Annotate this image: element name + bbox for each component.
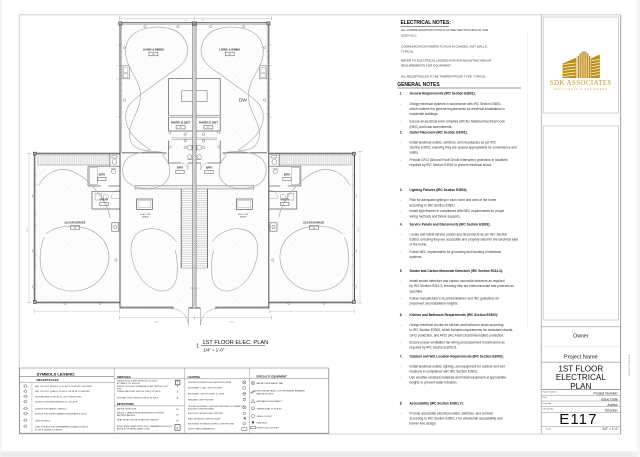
svg-text:JUNCTION BOX: JUNCTION BOX	[35, 420, 51, 422]
svg-text:DUPLEX FOR RANGE CONTROL: DUPLEX FOR RANGE CONTROL	[35, 407, 67, 410]
svg-text:SWITCHES: SWITCHES	[117, 375, 131, 379]
svg-text:THREE WAY LIGHT SWITCH, DIM @: THREE WAY LIGHT SWITCH, DIM @ 42" A.F.F.	[117, 390, 161, 393]
svg-text:SMOKE DETECTOR: SMOKE DETECTOR	[117, 408, 137, 410]
svg-text:ALL COMMUNICATION POINTS AS PE: ALL COMMUNICATION POINTS AS PER SECTION …	[401, 28, 488, 32]
svg-text:ELECTRIC CEILING LIGHT FIXTURE: ELECTRIC CEILING LIGHT FIXTURE	[188, 413, 223, 415]
svg-text:by IRC Section R314.3, ensurin: by IRC Section R314.3, ensuring they are…	[410, 284, 515, 288]
svg-text:Drawn By: Drawn By	[543, 403, 552, 405]
svg-text:Install electrical outlets, li: Install electrical outlets, lighting, an…	[410, 364, 505, 368]
svg-text:BATHROOM EXHAUST FAN: BATHROOM EXHAUST FAN	[257, 382, 284, 385]
svg-text:RECESSED EXTERIOR SOFFIT LIGHT: RECESSED EXTERIOR SOFFIT LIGHT FIXTURE	[188, 423, 235, 425]
svg-text:safety.: safety.	[410, 151, 419, 155]
svg-text:to IRC Section E3902, which in: to IRC Section E3902, which includes req…	[410, 328, 514, 332]
svg-text:BATTERY BACKUP: BATTERY BACKUP	[117, 414, 136, 417]
svg-text:42" A.F.F. UNDER COUNTER: 42" A.F.F. UNDER COUNTER	[35, 428, 63, 431]
svg-text:-: -	[400, 323, 401, 327]
svg-text:WALL MOUNTED LIGHT FIXTURE: WALL MOUNTED LIGHT FIXTURE	[188, 417, 221, 420]
svg-text:R: R	[177, 427, 179, 430]
svg-text:Follow NEC requirements for gr: Follow NEC requirements for grounding an…	[410, 250, 502, 254]
svg-text:Ensure proper ventilation fan: Ensure proper ventilation fan wiring and…	[410, 340, 506, 344]
svg-text:DUPLEX FOR UPPER CABINET MICRO: DUPLEX FOR UPPER CABINET MICROWAVE (U-BO…	[35, 413, 87, 416]
svg-text:Use weather-resistant material: Use weather-resistant materials and inst…	[410, 375, 507, 379]
svg-text:ELECTRICAL NOTES:: ELECTRICAL NOTES:	[401, 20, 452, 26]
svg-text:SINGLE POLE KEY OPERATED LIGHT: SINGLE POLE KEY OPERATED LIGHT SWITCH @ …	[117, 385, 169, 388]
svg-text:8/29/2023 4:46:08 PM: 8/29/2023 4:46:08 PM	[627, 355, 629, 376]
svg-text:ELECTRICAL PANEL, TOP OF HIGHE: ELECTRICAL PANEL, TOP OF HIGHEST BREAKER	[257, 389, 306, 392]
svg-text:(2) CAR GARAGE: (2) CAR GARAGE	[65, 222, 86, 225]
svg-text:Provide GFCI (Ground Fault Cir: Provide GFCI (Ground Fault Circuit Inter…	[410, 158, 509, 162]
svg-text:Design electrical systems in a: Design electrical systems in accordance …	[410, 102, 502, 106]
svg-text:Project Number: Project Number	[543, 390, 557, 393]
svg-text:Project Name: Project Name	[564, 355, 598, 361]
svg-text:DATA JACK: DATA JACK	[257, 421, 268, 424]
svg-text:-: -	[400, 158, 401, 162]
svg-text:ELEC. PNL: ELEC. PNL	[140, 214, 151, 216]
svg-text:LIGHTING: LIGHTING	[188, 375, 200, 379]
svg-text:Ensure all electrical work com: Ensure all electrical work complies with…	[410, 120, 506, 124]
svg-text:RECESSED LIGHT FIXTURE, IC TYP: RECESSED LIGHT FIXTURE, IC TYPE	[188, 394, 225, 396]
svg-text:locations in compliance with I: locations in compliance with IRC Section…	[410, 370, 479, 374]
svg-text:PANTRY CLOSET: PANTRY CLOSET	[199, 122, 219, 125]
svg-text:E3603, ensuring they are acces: E3603, ensuring they are accessible and …	[410, 238, 519, 242]
svg-text:2020 N.E.C.: 2020 N.E.C.	[401, 33, 418, 37]
svg-text:Outdoor and Wet Location Requi: Outdoor and Wet Location Requirements (I…	[410, 354, 504, 358]
svg-text:LIVING & DINING: LIVING & DINING	[219, 47, 240, 51]
svg-text:Section E3901, ensuring they a: Section E3901, ensuring they are spaced …	[410, 146, 517, 150]
svg-text:24'-0": 24'-0"	[155, 321, 160, 323]
svg-text:UTILITY: UTILITY	[280, 200, 289, 202]
svg-text:-: -	[400, 102, 401, 106]
svg-text:REFER TO ELECTRICAL LEGEND FOR: REFER TO ELECTRICAL LEGEND FOR ADA MOUNT…	[401, 58, 492, 62]
svg-text:1: 1	[196, 343, 199, 349]
svg-text:Checked By: Checked By	[543, 409, 554, 411]
svg-text:1/4" = 1'-0": 1/4" = 1'-0"	[203, 348, 224, 353]
svg-text:2.: 2.	[400, 130, 403, 134]
svg-text:which outlines the general req: which outlines the general requirements …	[410, 107, 506, 111]
svg-text:Install electrical outlets, sw: Install electrical outlets, switches, an…	[410, 140, 497, 144]
svg-text:1ST FLOOR ELEC. PLAN: 1ST FLOOR ELEC. PLAN	[202, 340, 268, 346]
svg-text:1.: 1.	[400, 92, 403, 96]
svg-text:systems.: systems.	[410, 255, 423, 259]
svg-text:THERMOSTAT @ 48" A.F.F.: THERMOSTAT @ 48" A.F.F.	[257, 407, 283, 410]
svg-text:DW: DW	[239, 98, 247, 104]
svg-text:-: -	[400, 250, 401, 254]
svg-text:Design electrical circuits for: Design electrical circuits for kitchen a…	[410, 323, 504, 327]
svg-text:-: -	[400, 340, 401, 344]
svg-text:ARCHITECTS & ENGINEERS: ARCHITECTS & ENGINEERS	[554, 88, 608, 91]
svg-text:COMMUNICATION RISERS TO RUN IN: COMMUNICATION RISERS TO RUN IN CHASES, N…	[401, 44, 488, 48]
svg-text:SYMBOLS LEGEND:: SYMBOLS LEGEND:	[37, 371, 76, 376]
svg-text:22'-0": 22'-0"	[358, 227, 360, 232]
svg-text:CEILING MOUNTED LED LIGHTING F: CEILING MOUNTED LED LIGHTING FIXTURE	[188, 382, 232, 384]
svg-text:BATH: BATH	[99, 174, 106, 177]
svg-text:PENDANT LIGHT FIXTURE: PENDANT LIGHT FIXTURE	[188, 398, 214, 401]
svg-text:(NEC) and local amendments.: (NEC) and local amendments.	[410, 125, 453, 129]
svg-text:Owner: Owner	[573, 333, 589, 339]
svg-text:Service Panels and Disconnects: Service Panels and Disconnects (IRC Sect…	[410, 222, 491, 226]
svg-text:BUILDING LIGHTING WIRE: BUILDING LIGHTING WIRE	[188, 409, 214, 411]
svg-text:SPECIALTY EQUIPMENT: SPECIALTY EQUIPMENT	[256, 375, 287, 379]
svg-text:GENERAL NOTES: GENERAL NOTES	[397, 82, 440, 88]
svg-text:ALL RECEPTACLES TO BE TAMPER P: ALL RECEPTACLES TO BE TAMPER PROOF TYPE,…	[401, 74, 486, 78]
svg-text:Provide accessible electrical: Provide accessible electrical outlets, s…	[410, 411, 494, 415]
svg-text:-: -	[400, 364, 401, 368]
svg-text:required by IRC Section E3902: required by IRC Section E3902 to prevent…	[410, 163, 493, 167]
svg-text:-: -	[400, 375, 401, 379]
svg-text:Author: Author	[607, 403, 618, 407]
svg-text:according to IRC Section E3901: according to IRC Section E3901.7 for whe…	[410, 417, 503, 421]
svg-text:-: -	[400, 209, 401, 213]
svg-text:Checker: Checker	[605, 409, 619, 413]
svg-text:1/4" = 1'-0": 1/4" = 1'-0"	[602, 427, 619, 431]
svg-text:General Requirements (IRC Sect: General Requirements (IRC Section E3601)…	[410, 92, 476, 96]
svg-text:placement and installation hei: placement and installation heights.	[410, 302, 459, 306]
svg-text:4.: 4.	[400, 222, 403, 226]
svg-text:Accessibility (IRC Section E39: Accessibility (IRC Section E3901.7):	[410, 401, 464, 405]
svg-text:BATH: BATH	[177, 167, 184, 170]
svg-text:of the home.: of the home.	[410, 243, 428, 247]
svg-text:according to IRC Section E3801: according to IRC Section E3801.	[410, 203, 456, 207]
svg-text:UTILITY: UTILITY	[100, 200, 109, 202]
svg-text:Locate and install service pan: Locate and install service panels and di…	[410, 232, 508, 236]
svg-text:required by IRC Section E3902.: required by IRC Section E3902.8.	[410, 346, 458, 350]
svg-text:APPLIANCE DISCONNECT: APPLIANCE DISCONNECT	[257, 400, 283, 403]
svg-text:RECEPTACLES: RECEPTACLES	[37, 378, 59, 382]
svg-text:LIGHT / FAN COMBINATION: LIGHT / FAN COMBINATION	[188, 428, 215, 431]
svg-text:SMOKE / CARBON MONOXIDE DETECT: SMOKE / CARBON MONOXIDE DETECTOR WITH	[117, 412, 165, 415]
svg-text:5.: 5.	[400, 269, 403, 273]
svg-text:48" MAX R.T.S. SWITCH: 48" MAX R.T.S. SWITCH	[117, 382, 140, 385]
svg-text:PANTRY CLOSET: PANTRY CLOSET	[171, 122, 191, 125]
svg-text:RECESSED 6" LED LIGHT FIXTURE: RECESSED 6" LED LIGHT FIXTURE	[188, 388, 223, 390]
svg-text:INTELLIGENT HEAT DETECTOR COMB: INTELLIGENT HEAT DETECTOR COMBINATION WI…	[117, 425, 172, 428]
svg-text:ELEC. PNL: ELEC. PNL	[238, 214, 249, 216]
svg-text:GFCI protection, and AFCI (Arc: GFCI protection, and AFCI (Arc Fault Cir…	[410, 333, 505, 337]
svg-text:SDK ASSOCIATES: SDK ASSOCIATES	[550, 79, 612, 87]
svg-text:-: -	[400, 232, 401, 236]
svg-text:22'-0": 22'-0"	[27, 227, 29, 232]
svg-text:4'-0": 4'-0"	[184, 20, 188, 22]
svg-text:7.: 7.	[400, 354, 403, 358]
svg-text:Kitchen and Bathroom Requireme: Kitchen and Bathroom Requirements (IRC S…	[410, 313, 498, 317]
svg-text:24'-0": 24'-0"	[230, 321, 235, 323]
svg-text:residential buildings.: residential buildings.	[410, 112, 439, 116]
svg-text:Follow manufacturer's recommen: Follow manufacturer's recommendations an…	[410, 296, 501, 300]
svg-text:HEAT DETECTOR WITH BATTERY BAC: HEAT DETECTOR WITH BATTERY BACKUP	[117, 419, 159, 422]
svg-text:DBL. 120 VOLT QUAD @ 18" A.F.F: DBL. 120 VOLT QUAD @ 18" A.F.F. OR 48" A…	[35, 390, 90, 393]
svg-text:8.: 8.	[400, 401, 403, 405]
svg-text:RUN WAY LIGHT SWITCH, DIM @ 42: RUN WAY LIGHT SWITCH, DIM @ 42" A.F.F.	[117, 397, 159, 400]
svg-text:specified.: specified.	[410, 289, 424, 293]
svg-text:Outlet Placement (IRC Section: Outlet Placement (IRC Section E3901):	[410, 130, 468, 134]
svg-text:BATH: BATH	[284, 174, 291, 177]
svg-text:INTERCOM @ 48" A.F.F.: INTERCOM @ 48" A.F.F.	[257, 426, 280, 429]
svg-text:PART AT 48" A.F.F.: PART AT 48" A.F.F.	[257, 392, 275, 395]
svg-text:4'-0": 4'-0"	[201, 20, 205, 22]
svg-text:TYPICAL: TYPICAL	[401, 50, 414, 54]
svg-text:Scale: Scale	[546, 428, 552, 430]
svg-text:-: -	[400, 198, 401, 202]
svg-text:6.: 6.	[400, 313, 403, 317]
svg-text:BATH: BATH	[206, 167, 213, 170]
svg-text:barrier-free design.: barrier-free design.	[410, 422, 437, 426]
svg-text:DETECTIONS: DETECTIONS	[117, 402, 134, 406]
svg-text:-: -	[400, 140, 401, 144]
svg-text:wiring methods and fixture sup: wiring methods and fixture supports.	[410, 214, 461, 218]
svg-text:GROUND FAULT DUPLEX @ +18" OR: GROUND FAULT DUPLEX @ +18" OR AS NOTED	[35, 395, 82, 398]
svg-text:heights to prevent water intru: heights to prevent water intrusion.	[410, 381, 458, 385]
svg-text:SPACE: SPACE	[142, 216, 149, 219]
svg-text:E117: E117	[559, 411, 597, 428]
svg-text:-: -	[400, 411, 401, 415]
svg-text:SINGLE POLE LIGHT SWITCH @ 42": SINGLE POLE LIGHT SWITCH @ 42" A.F.F.	[117, 380, 158, 383]
svg-text:DUPLEX FOR REFRIGERATOR @ +48": DUPLEX FOR REFRIGERATOR @ +48" A.F.F.	[35, 401, 78, 404]
svg-text:-: -	[400, 120, 401, 124]
svg-text:3.: 3.	[400, 188, 403, 192]
svg-text:Project Number: Project Number	[593, 392, 618, 396]
svg-text:JUNCTION BOX FOR DISHWASHER CO: JUNCTION BOX FOR DISHWASHER CONNECTIONS …	[35, 425, 88, 428]
svg-text:LIVING & DINING: LIVING & DINING	[143, 47, 164, 51]
svg-text:AND A 10 YR RATED TAMP LOCAL: AND A 10 YR RATED TAMP LOCAL	[117, 428, 151, 431]
svg-text:-: -	[400, 296, 401, 300]
svg-text:DBL. 120 VOLT DUPLEX @ 18" A.F: DBL. 120 VOLT DUPLEX @ 18" A.F.F. OR 48"…	[35, 385, 93, 388]
svg-text:REQUIREMENTS FOR EQUIPMENT: REQUIREMENTS FOR EQUIPMENT	[401, 64, 451, 68]
svg-text:(2) CAR GARAGE: (2) CAR GARAGE	[303, 222, 324, 225]
svg-text:A.F.F.: A.F.F.	[117, 387, 123, 390]
svg-text:CABLE OUTLET: CABLE OUTLET	[257, 415, 273, 418]
svg-text:Issue Date: Issue Date	[601, 397, 618, 401]
svg-text:Plan for adequate lighting in: Plan for adequate lighting in each room …	[410, 198, 497, 202]
svg-text:Install smoke detectors and ca: Install smoke detectors and carbon monox…	[410, 279, 505, 283]
svg-text:SPACE: SPACE	[240, 216, 247, 219]
svg-text:Smoke and Carbon Monoxide Dete: Smoke and Carbon Monoxide Detectors (IRC…	[410, 269, 504, 273]
svg-text:Lighting Fixtures (IRC Section: Lighting Fixtures (IRC Section E3801):	[410, 188, 468, 192]
svg-text:Install light fixtures in comp: Install light fixtures in compliance wit…	[410, 209, 506, 213]
svg-text:-: -	[400, 279, 401, 283]
